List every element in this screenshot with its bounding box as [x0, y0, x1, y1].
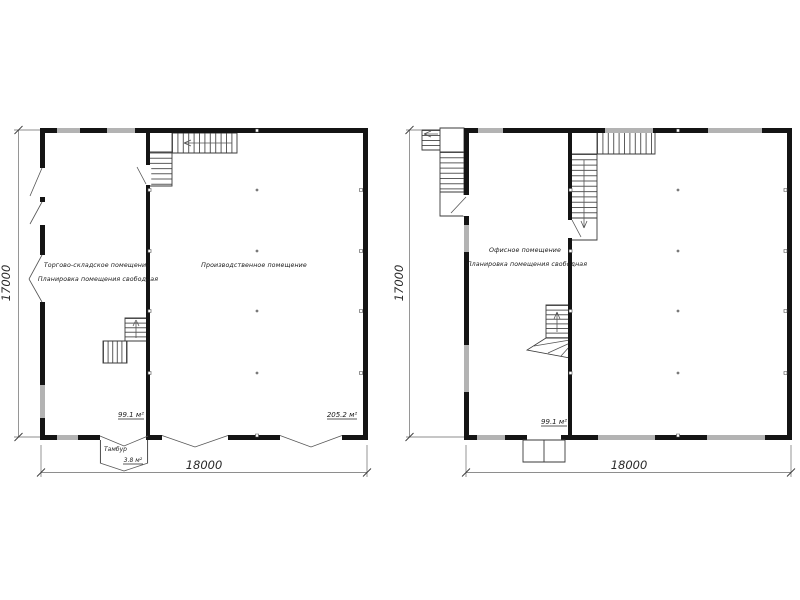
windows — [43, 131, 136, 438]
stair-direction-arrow — [424, 131, 438, 137]
column-markers — [569, 129, 787, 437]
stair-outline — [422, 128, 464, 216]
area-underlines — [118, 419, 357, 464]
column-dot — [256, 189, 259, 192]
exterior-walls — [40, 128, 368, 440]
column-dot — [677, 372, 680, 375]
column-dot — [677, 189, 680, 192]
plan-second-floor: Офисное помещение Планировка помещения с… — [392, 126, 795, 477]
plans-drawing: Торгово-складское помещение Планировка п… — [0, 0, 800, 600]
column-dot — [677, 250, 680, 253]
dimension-ticks — [15, 126, 372, 477]
width-dimension: 18000 — [611, 458, 648, 472]
wall-column-marks — [569, 129, 787, 437]
wall-openings — [43, 165, 343, 438]
stair-external — [422, 128, 464, 216]
dimension-rails — [14, 130, 367, 477]
room2-area: 205.2 м² — [327, 411, 358, 419]
entrance-porch — [523, 440, 565, 462]
stair-middle-left — [103, 318, 148, 363]
room1-label-line2: Планировка помещения свободная — [467, 260, 587, 268]
tambour-area: 3.8 м² — [124, 457, 143, 464]
stair-top-internal — [571, 132, 655, 240]
room1-area: 99.1 м² — [541, 418, 567, 426]
stair-outline — [103, 318, 148, 363]
door-swings — [451, 197, 581, 237]
room2-label: Производственное помещение — [201, 262, 307, 269]
exterior-walls — [464, 128, 792, 440]
stair-outline — [148, 133, 237, 186]
stair-top-left — [148, 133, 237, 186]
width-dimension: 18000 — [186, 458, 223, 472]
column-dot — [256, 250, 259, 253]
wall-openings — [467, 195, 571, 438]
stair-middle-winder — [527, 305, 570, 358]
column-dot — [677, 310, 680, 313]
column-markers — [148, 129, 363, 437]
floor-plans-canvas: Торгово-складское помещение Планировка п… — [0, 0, 800, 600]
dimension-lines — [14, 126, 371, 477]
column-dot — [256, 310, 259, 313]
tambour-label: Тамбур — [104, 446, 127, 453]
plan-first-floor: Торгово-складское помещение Планировка п… — [0, 126, 371, 477]
wall-column-marks — [148, 129, 363, 437]
room1-label-line1: Торгово-складское помещение — [44, 262, 150, 269]
height-dimension: 17000 — [0, 265, 13, 302]
column-dot — [256, 372, 259, 375]
height-dimension: 17000 — [392, 265, 406, 302]
stair-direction-arrow — [184, 140, 232, 146]
room1-label-line2: Планировка помещения свободная — [38, 275, 158, 283]
room1-area: 99.1 м² — [118, 411, 144, 419]
room1-label-line1: Офисное помещение — [489, 247, 561, 254]
windows — [467, 131, 766, 438]
